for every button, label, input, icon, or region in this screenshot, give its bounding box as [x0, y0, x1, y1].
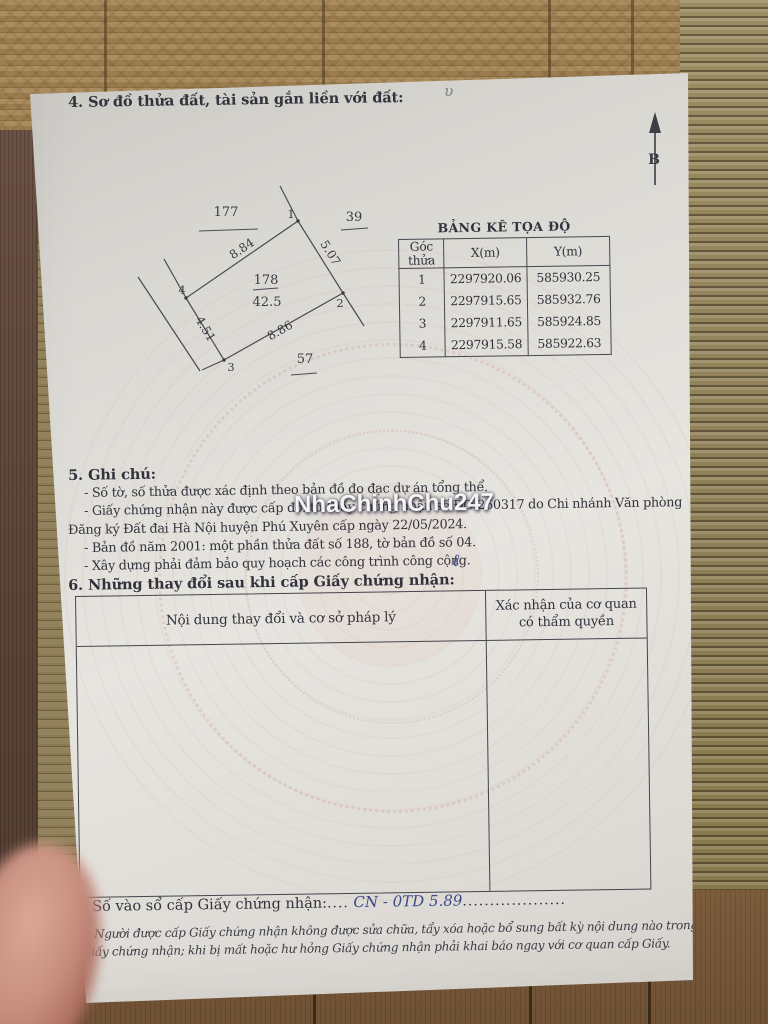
parcel-diagram: 177 39 57 178 42.5 1 2 3 4 8.84 5.07 4.5… — [115, 168, 385, 388]
coord-cell: 2297920.06 — [444, 267, 526, 291]
coord-cell: 4 — [400, 334, 446, 357]
coord-cell: 1 — [399, 268, 445, 291]
coord-cell: 2297915.58 — [445, 333, 527, 357]
north-label: B — [648, 152, 660, 168]
registry-number-handwritten: CN - 0TD 5.89 — [353, 892, 462, 912]
corner-label-3: 3 — [227, 360, 234, 374]
dots: .... — [327, 895, 349, 911]
north-arrow-head — [649, 112, 661, 133]
coord-cell: 585922.63 — [528, 332, 612, 356]
coord-cell: 2297915.65 — [445, 289, 527, 312]
side-length-left: 4.51 — [193, 314, 219, 344]
changes-col1-header: Nội dung thay đổi và cơ sở pháp lý — [76, 591, 487, 646]
coord-row: 3 2297911.65 585924.85 — [400, 310, 611, 335]
changes-col2-header: Xác nhận của cơ quan có thẩm quyền — [486, 589, 647, 640]
coord-cell: 585932.76 — [527, 288, 611, 311]
mat-right-band — [680, 0, 768, 1024]
parcel-number: 178 — [254, 273, 279, 288]
adjacent-parcel-177: 177 — [214, 205, 239, 220]
coord-col-corner: Góc thửa — [399, 239, 445, 269]
coord-table: Góc thửa X(m) Y(m) 1 2297920.06 585930.2… — [398, 236, 612, 358]
handwritten-squiggle: ℓ — [452, 551, 459, 571]
coord-cell: 3 — [400, 312, 446, 335]
side-length-right: 5.07 — [317, 238, 343, 268]
parcel-area: 42.5 — [253, 295, 282, 310]
coord-cell: 2297911.65 — [445, 311, 527, 334]
registry-label: Số vào sổ cấp Giấy chứng nhận: — [92, 896, 327, 915]
coord-cell: 2 — [399, 290, 445, 313]
dots: ................... — [462, 892, 566, 910]
changes-col1-empty — [77, 641, 491, 897]
changes-table-body — [77, 639, 651, 897]
photo-of-land-certificate: 4. Sơ đồ thửa đất, tài sản gắn liền với … — [0, 0, 768, 1024]
corner-label-1: 1 — [287, 207, 294, 221]
coord-table-title: BẢNG KÊ TỌA ĐỘ — [398, 218, 610, 236]
watermark-nhachinhchu247: NhaChinhChu247 — [294, 489, 494, 520]
side-length-top: 8.84 — [227, 235, 257, 262]
changes-table: Nội dung thay đổi và cơ sở pháp lý Xác n… — [75, 588, 651, 898]
adjacent-parcel-39: 39 — [346, 210, 363, 225]
coord-col-x: X(m) — [444, 238, 527, 268]
coord-cell: 585930.25 — [527, 265, 611, 289]
corner-label-4: 4 — [178, 283, 185, 297]
coord-col-y: Y(m) — [526, 236, 610, 266]
coord-row: 1 2297920.06 585930.25 — [399, 265, 610, 291]
handwritten-mark: υ — [444, 82, 453, 100]
certificate-page: 4. Sơ đồ thửa đất, tài sản gắn liền với … — [0, 0, 768, 1024]
adjacent-parcel-57: 57 — [297, 352, 314, 367]
changes-col2-empty — [487, 639, 651, 891]
changes-table-header: Nội dung thay đổi và cơ sở pháp lý Xác n… — [76, 589, 647, 647]
coord-row: 4 2297915.58 585922.63 — [400, 332, 611, 358]
side-length-bottom: 8.86 — [265, 318, 295, 343]
corner-label-2: 2 — [336, 296, 343, 310]
section5-heading: 5. Ghi chú: — [68, 466, 156, 484]
section4-heading: 4. Sơ đồ thửa đất, tài sản gắn liền với … — [68, 89, 404, 111]
north-arrow: B — [635, 100, 680, 195]
adjacent-boundary-line — [138, 277, 200, 371]
coord-row: 2 2297915.65 585932.76 — [399, 288, 610, 313]
coord-cell: 585924.85 — [527, 310, 611, 333]
